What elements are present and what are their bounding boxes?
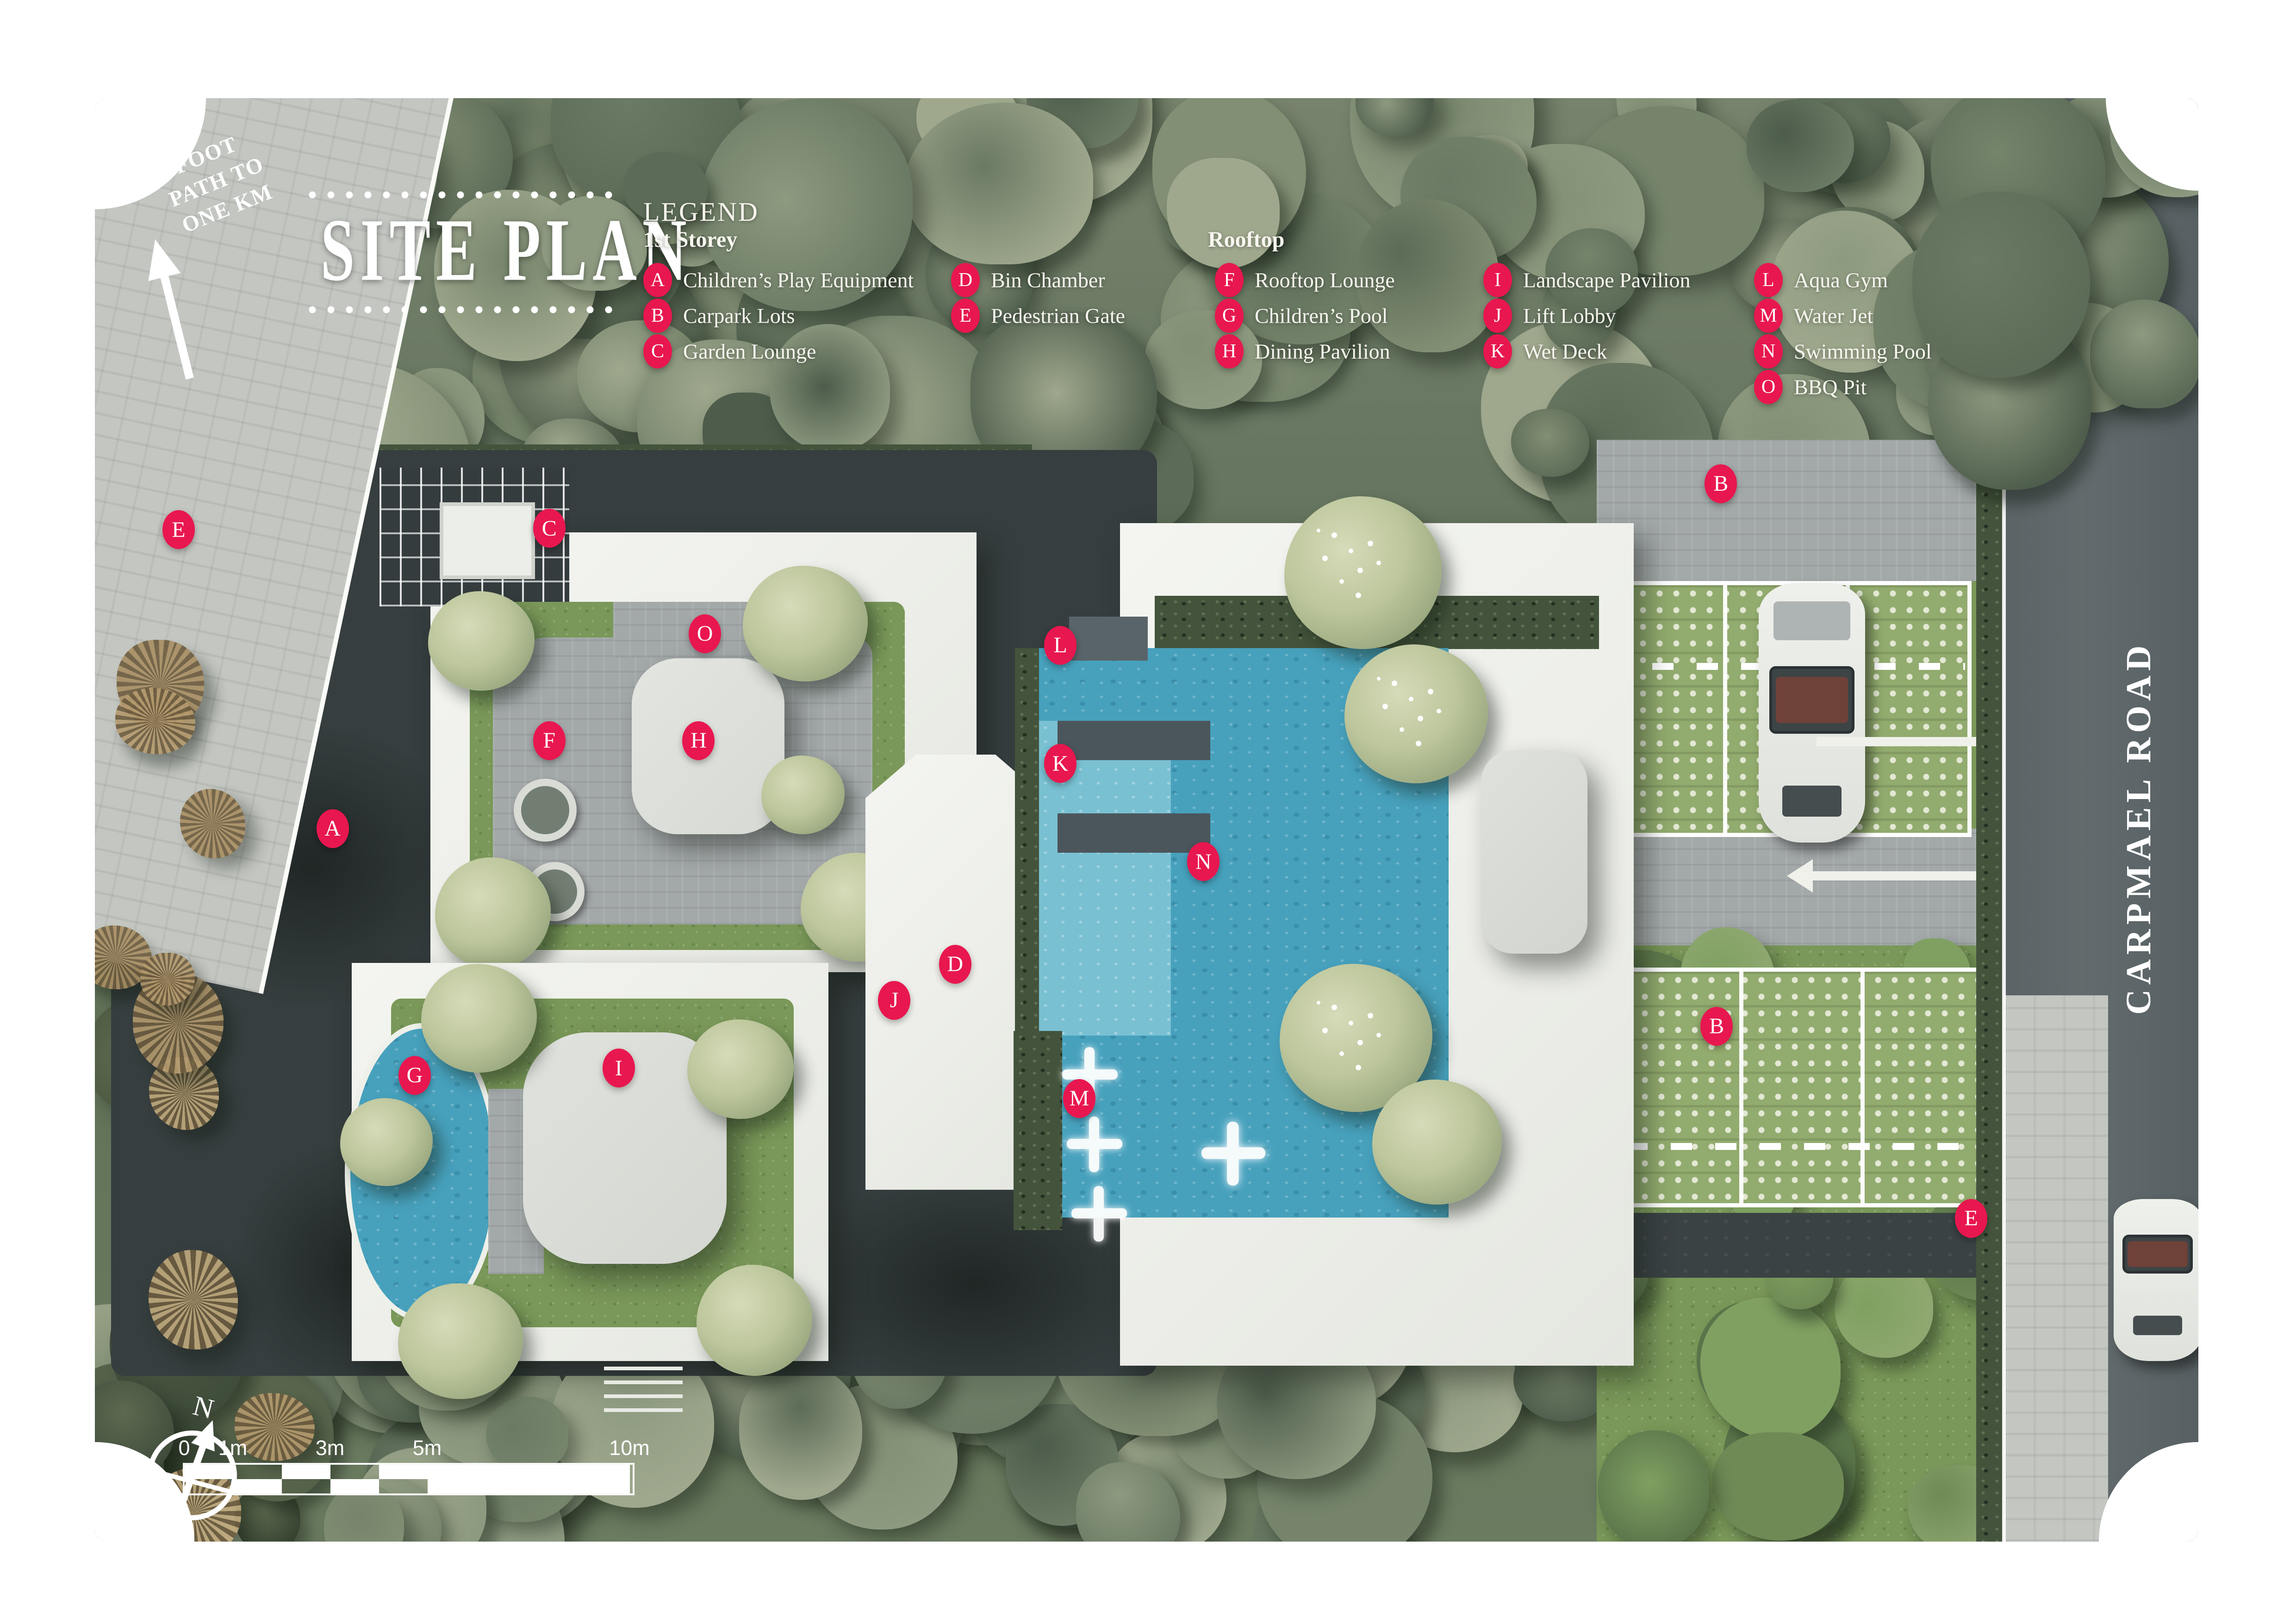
- legend-key-icon: C: [643, 334, 672, 369]
- legend-key-icon: G: [1215, 299, 1244, 333]
- map-marker-J: J: [878, 981, 910, 1020]
- legend-item-label: Landscape Pavilion: [1523, 268, 1691, 293]
- legend-item-label: Swimming Pool: [1794, 339, 1932, 364]
- road-car: [2114, 1199, 2198, 1361]
- wet-deck-bench-2: [1058, 813, 1210, 853]
- legend-key-icon: E: [951, 299, 980, 333]
- roadside-hedge: [1976, 440, 2004, 1542]
- page-title: SITE PLAN: [321, 199, 601, 302]
- parked-car: [1759, 583, 1865, 843]
- scale-bar: 01m3m5m10m: [183, 1436, 634, 1492]
- map-marker-F: F: [533, 721, 566, 760]
- title-dots-bottom: [303, 306, 618, 314]
- legend-key-icon: F: [1215, 263, 1244, 297]
- map-marker-B: B: [1700, 1007, 1733, 1046]
- legend-key-icon: M: [1754, 299, 1783, 333]
- map-marker-K: K: [1044, 744, 1076, 783]
- legend-key-icon: O: [1754, 370, 1783, 404]
- legend-key-icon: I: [1483, 263, 1512, 297]
- legend-item-label: Bin Chamber: [991, 268, 1105, 293]
- title-dots-top: [303, 191, 618, 199]
- legend-group-name: Rooftop: [1208, 227, 1284, 252]
- legend-group-name: 1st Storey: [643, 227, 737, 252]
- scale-label: 0: [178, 1436, 190, 1460]
- drive-arrow-out: [1807, 871, 2002, 881]
- map-marker-G: G: [398, 1056, 431, 1095]
- legend-item-label: Carpark Lots: [683, 304, 795, 328]
- scale-label: 5m: [413, 1436, 442, 1460]
- map-marker-E: E: [162, 510, 195, 549]
- map-marker-D: D: [939, 945, 971, 984]
- map-marker-L: L: [1044, 626, 1076, 665]
- legend-item-label: BBQ Pit: [1794, 375, 1867, 400]
- wet-deck-bench-1: [1058, 721, 1210, 760]
- map-marker-B: B: [1705, 464, 1737, 503]
- legend-key-icon: D: [951, 263, 980, 297]
- map-marker-C: C: [533, 509, 566, 548]
- scale-bar-blocks: [183, 1463, 635, 1495]
- carpark-bottom: [1620, 968, 1985, 1207]
- water-jet: [1071, 1186, 1127, 1242]
- stairs: [604, 1367, 683, 1418]
- legend-key-icon: B: [643, 299, 672, 333]
- map-marker-I: I: [603, 1049, 635, 1087]
- legend-item-label: Water Jet: [1794, 304, 1873, 328]
- legend-key-icon: A: [643, 263, 672, 297]
- scale-label: 1m: [218, 1436, 248, 1460]
- legend-item-label: Children’s Pool: [1255, 304, 1388, 328]
- legend-key-icon: N: [1754, 334, 1783, 369]
- legend-item-label: Rooftop Lounge: [1255, 268, 1395, 293]
- map-marker-M: M: [1063, 1079, 1095, 1118]
- legend-item-label: Dining Pavilion: [1255, 339, 1390, 364]
- legend-item-label: Pedestrian Gate: [991, 304, 1125, 328]
- legend-key-icon: K: [1483, 334, 1512, 369]
- legend-key-icon: L: [1754, 263, 1783, 297]
- road-name-label: CARPMAEL ROAD: [2119, 621, 2159, 1015]
- scale-label: 10m: [609, 1436, 650, 1460]
- legend-item-label: Garden Lounge: [683, 339, 816, 364]
- legend-key-icon: J: [1483, 299, 1512, 333]
- road-sidewalk: [2004, 995, 2108, 1542]
- map-marker-A: A: [317, 809, 349, 848]
- map-marker-O: O: [689, 614, 721, 653]
- aqua-gym-platform: [1069, 617, 1148, 661]
- site-plan-sheet: SITE PLAN LEGEND 1st StoreyAChildren’s P…: [95, 98, 2198, 1542]
- legend-item-label: Lift Lobby: [1523, 304, 1616, 328]
- pool-vine-edge: [1015, 648, 1039, 1046]
- water-jet-planter: [1014, 1031, 1062, 1230]
- legend-item-label: Aqua Gym: [1794, 268, 1888, 293]
- legend-heading: LEGEND: [643, 196, 759, 227]
- site-plan-page: SITE PLAN LEGEND 1st StoreyAChildren’s P…: [0, 0, 2296, 1624]
- map-marker-E: E: [1955, 1199, 1987, 1238]
- pool-fountain: [1201, 1122, 1265, 1186]
- deck-pavilion-roof: [1481, 750, 1587, 954]
- legend-key-icon: H: [1215, 334, 1244, 369]
- scale-label: 3m: [316, 1436, 345, 1460]
- map-marker-N: N: [1187, 842, 1220, 881]
- road-edge-line: [2002, 422, 2006, 1542]
- map-marker-H: H: [682, 721, 715, 760]
- legend-item-label: Children’s Play Equipment: [683, 268, 914, 293]
- legend-item-label: Wet Deck: [1523, 339, 1607, 364]
- water-jet: [1067, 1117, 1122, 1172]
